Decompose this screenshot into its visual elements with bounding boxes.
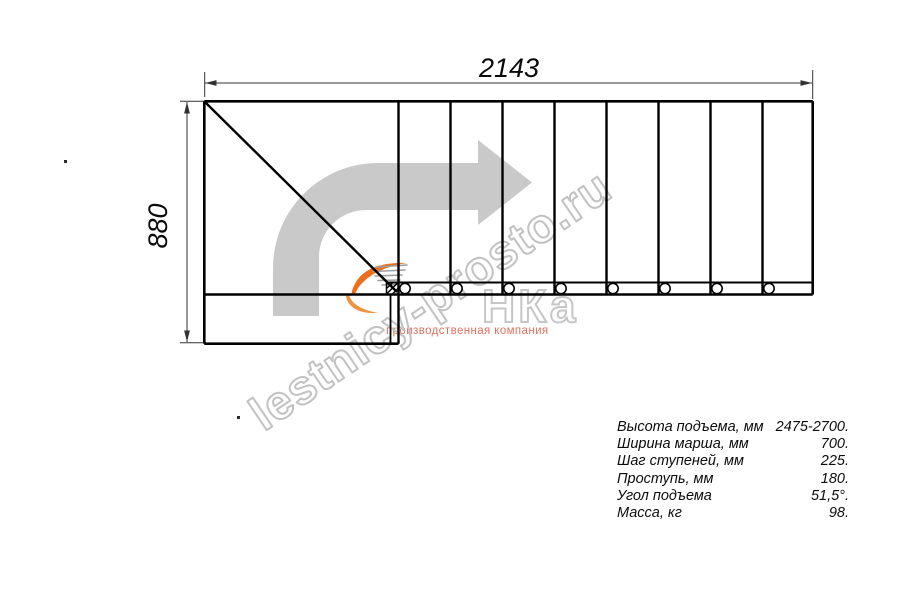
stair-drawing-page: НКа производственная компания lestnicy-p… xyxy=(0,0,900,600)
dim-left-value: 880 xyxy=(143,203,173,248)
speck-dot xyxy=(237,416,240,419)
bolt-holes xyxy=(400,283,774,293)
spec-value: 98. xyxy=(829,505,849,522)
spec-row-mass: Масса, кг 98. xyxy=(617,505,849,522)
spec-table: Высота подъема, мм 2475-2700. Ширина мар… xyxy=(617,419,849,522)
spec-label: Шаг ступеней, мм xyxy=(617,453,744,470)
arrowhead-bottom xyxy=(184,331,190,343)
spec-value: 180. xyxy=(821,471,849,488)
arrowhead-top xyxy=(184,102,190,114)
arrowhead-right xyxy=(801,80,813,86)
spec-value: 2475-2700. xyxy=(776,419,849,436)
spec-row-angle: Угол подъема 51,5°. xyxy=(617,488,849,505)
spec-label: Угол подъема xyxy=(617,488,712,505)
spec-label: Проступь, мм xyxy=(617,471,713,488)
dimension-left: 880 xyxy=(143,101,204,342)
platform-diagonal xyxy=(205,102,397,292)
spec-value: 700. xyxy=(821,436,849,453)
spec-row-tread: Проступь, мм 180. xyxy=(617,471,849,488)
dim-top-value: 2143 xyxy=(478,53,539,83)
step-lines xyxy=(391,101,763,343)
spec-value: 225. xyxy=(821,453,849,470)
spec-label: Масса, кг xyxy=(617,505,682,522)
arrowhead-left xyxy=(205,80,217,86)
spec-label: Высота подъема, мм xyxy=(617,419,764,436)
spec-value: 51,5°. xyxy=(811,488,849,505)
speck-dot xyxy=(64,160,67,163)
spec-row-width: Ширина марша, мм 700. xyxy=(617,436,849,453)
staircase-plan xyxy=(204,101,812,343)
spec-row-step: Шаг ступеней, мм 225. xyxy=(617,453,849,470)
spec-label: Ширина марша, мм xyxy=(617,436,749,453)
dimension-top: 2143 xyxy=(205,53,813,99)
spec-row-height: Высота подъема, мм 2475-2700. xyxy=(617,419,849,436)
